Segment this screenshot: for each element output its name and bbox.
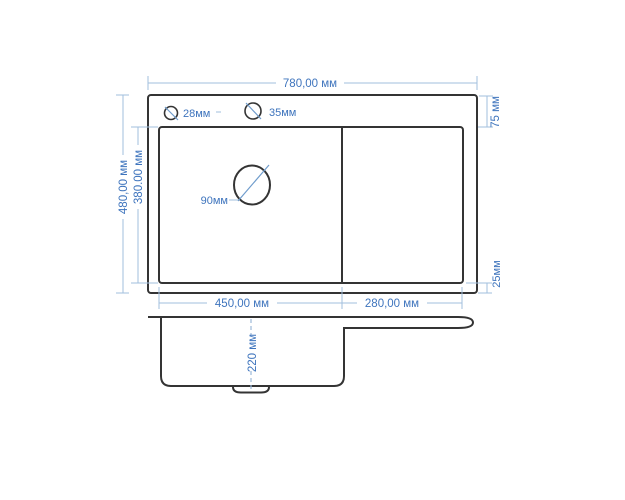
drawing-canvas: 28мм 35мм 90мм 780,00 мм 75 мм 480,00 мм…: [0, 0, 625, 500]
sink-outer-rim: [148, 95, 477, 293]
drain-label: 90мм: [201, 195, 228, 207]
dim-480-label: 480,00 мм: [118, 160, 130, 214]
dim-220-label: 220 мм: [247, 334, 259, 372]
drain-diameter-slash: [238, 165, 269, 201]
dim-280-label: 280,00 мм: [365, 298, 419, 310]
dim-450-label: 450,00 мм: [215, 298, 269, 310]
dim-380-label: 380.00 мм: [133, 150, 145, 204]
dim-25-label: 25мм: [491, 260, 503, 287]
hole-35mm-label: 35мм: [269, 107, 296, 119]
hole-28mm-label: 28мм: [183, 108, 210, 120]
dim-75-label: 75 мм: [490, 96, 502, 128]
dim-780-label: 780,00 мм: [283, 78, 337, 90]
sink-side-profile: [148, 317, 473, 386]
sink-dimension-drawing: 28мм 35мм 90мм 780,00 мм 75 мм 480,00 мм…: [0, 0, 625, 500]
